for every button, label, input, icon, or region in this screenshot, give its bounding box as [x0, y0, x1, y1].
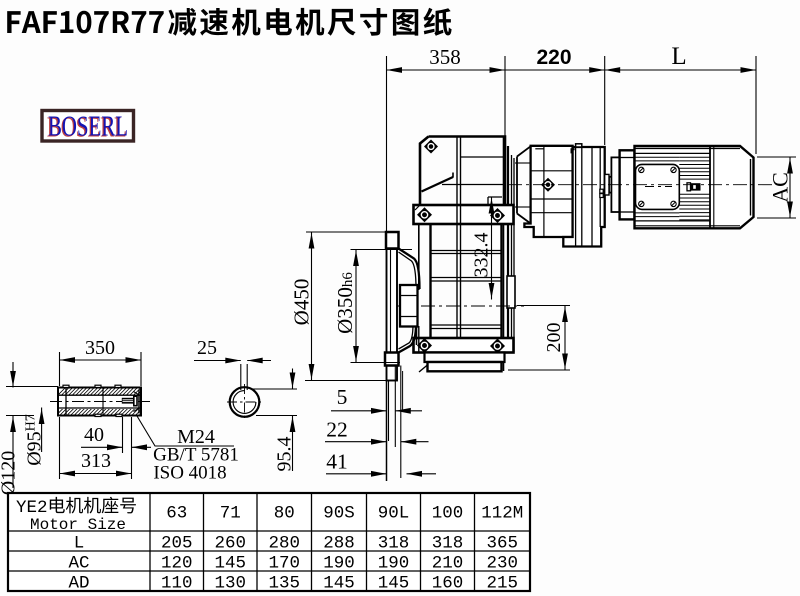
svg-text:332.4: 332.4 [471, 233, 493, 278]
svg-text:L: L [671, 43, 686, 70]
svg-text:205: 205 [161, 534, 193, 554]
svg-text:41: 41 [326, 450, 348, 474]
svg-text:YE2: YE2 [16, 498, 48, 518]
svg-text:AD: AD [68, 574, 89, 594]
svg-text:Ø120: Ø120 [0, 451, 20, 495]
svg-text:AC: AC [68, 554, 89, 574]
svg-text:63: 63 [166, 504, 187, 524]
svg-text:95.4: 95.4 [274, 437, 296, 472]
svg-text:L: L [74, 534, 85, 554]
svg-text:AC: AC [768, 172, 793, 203]
svg-text:160: 160 [432, 574, 464, 594]
svg-text:130: 130 [214, 574, 246, 594]
svg-text:112M: 112M [481, 504, 523, 524]
svg-text:BOSERL: BOSERL [48, 110, 128, 142]
svg-text:90S: 90S [323, 504, 355, 524]
svg-text:71: 71 [220, 504, 241, 524]
svg-text:5: 5 [337, 385, 348, 409]
svg-text:Motor Size: Motor Size [30, 516, 126, 534]
svg-text:260: 260 [214, 534, 246, 554]
svg-text:145: 145 [323, 574, 355, 594]
svg-text:318: 318 [378, 534, 410, 554]
svg-text:80: 80 [274, 504, 295, 524]
svg-text:190: 190 [323, 554, 355, 574]
svg-text:365: 365 [486, 534, 518, 554]
svg-text:230: 230 [486, 554, 518, 574]
svg-text:200: 200 [543, 323, 565, 353]
svg-text:170: 170 [268, 554, 300, 574]
svg-text:22: 22 [326, 418, 348, 442]
svg-text:25: 25 [197, 337, 217, 359]
svg-text:210: 210 [432, 554, 464, 574]
svg-text:Ø450: Ø450 [290, 279, 314, 326]
svg-text:145: 145 [378, 574, 410, 594]
svg-text:318: 318 [432, 534, 464, 554]
svg-text:190: 190 [378, 554, 410, 574]
svg-text:280: 280 [268, 534, 300, 554]
svg-text:110: 110 [161, 574, 193, 594]
svg-text:220: 220 [536, 46, 571, 69]
svg-text:288: 288 [323, 534, 355, 554]
svg-text:215: 215 [486, 574, 518, 594]
svg-text:ISO 4018: ISO 4018 [153, 463, 226, 484]
svg-text:135: 135 [268, 574, 300, 594]
svg-text:100: 100 [432, 504, 464, 524]
svg-text:145: 145 [214, 554, 246, 574]
svg-text:350: 350 [85, 337, 115, 359]
svg-text:358: 358 [429, 45, 461, 69]
svg-text:120: 120 [161, 554, 193, 574]
svg-text:40: 40 [84, 424, 104, 446]
svg-text:313: 313 [81, 450, 111, 472]
svg-text:90L: 90L [378, 504, 410, 524]
